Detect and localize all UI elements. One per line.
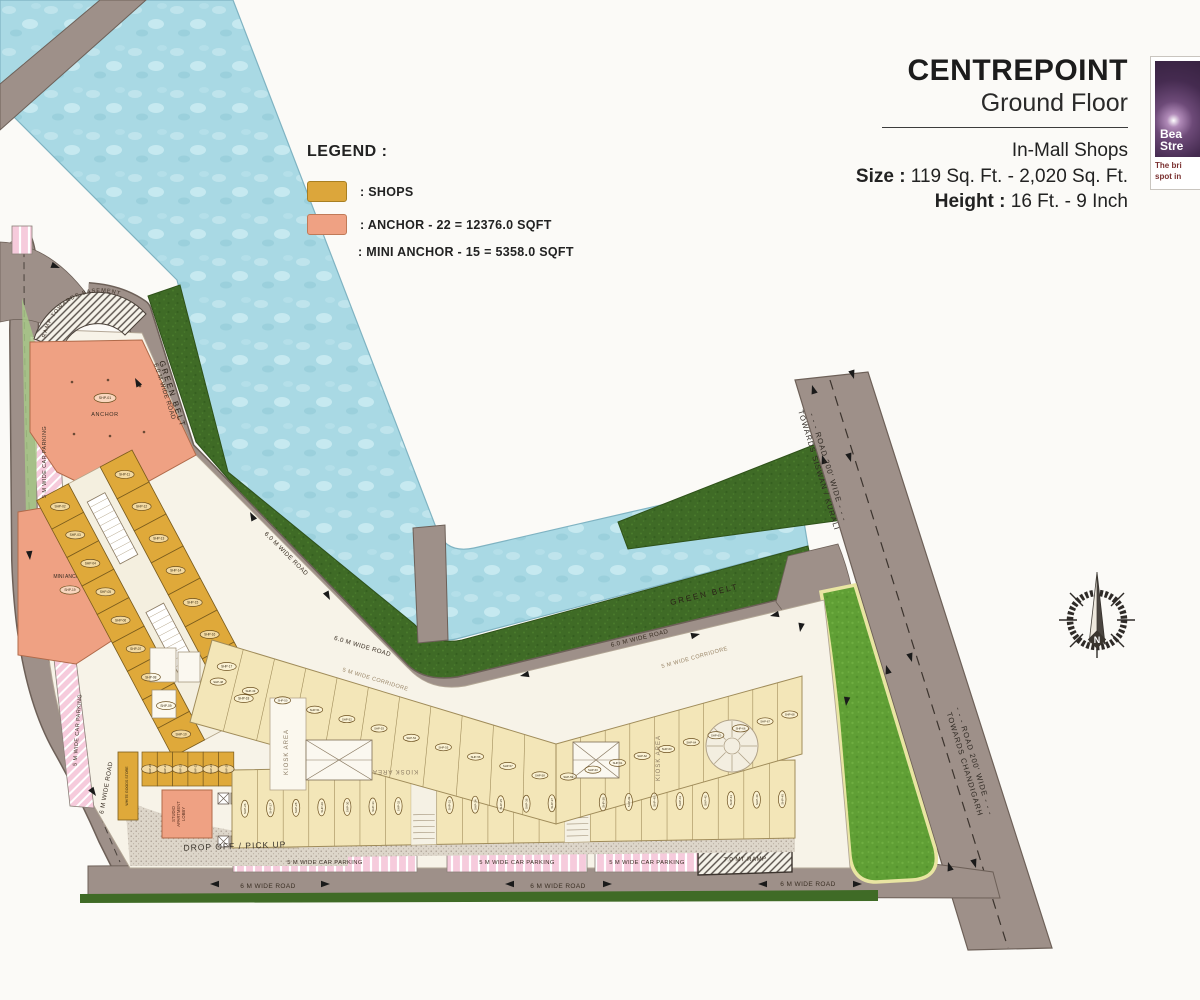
label-parking_5: 5 M WIDE CAR PARKING — [42, 426, 48, 498]
size-value: 119 Sq. Ft. - 2,020 Sq. Ft. — [911, 166, 1128, 187]
svg-text:SHP-64: SHP-64 — [686, 740, 696, 744]
svg-text:SHP-30: SHP-30 — [345, 801, 349, 812]
shop-oval: SHP-09 — [156, 702, 175, 710]
shop-oval: SHP-26 — [241, 800, 249, 817]
shop-oval: SHP-38 — [599, 794, 607, 811]
size-label: Size : — [856, 166, 906, 187]
height-value: 16 Ft. - 9 Inch — [1011, 191, 1128, 212]
svg-text:SHP-19: SHP-19 — [64, 588, 75, 592]
anchor-label: ANCHOR — [91, 412, 118, 418]
shop-oval: SHP-13 — [149, 534, 168, 542]
svg-text:SHP-65: SHP-65 — [711, 733, 721, 737]
shop-oval: SHP-35 — [497, 796, 505, 813]
shop-oval: SHP-43 — [727, 792, 735, 809]
shop-oval: SHP-65 — [708, 732, 724, 739]
shop-oval: SHP-48 — [210, 678, 226, 685]
shop-oval: SHP-32 — [395, 798, 403, 815]
shop-oval: SHP-37 — [548, 795, 556, 812]
shop-oval: SHP-11 — [115, 470, 134, 478]
shop-oval: SHP-40 — [650, 793, 658, 810]
brand-logo-text: Bea Stre — [1160, 128, 1183, 153]
shop-oval: SHP-02 — [51, 502, 70, 510]
svg-text:SHP-10: SHP-10 — [176, 732, 187, 736]
shop-oval: SHP-27 — [267, 800, 275, 817]
shop-oval: SHP-33 — [446, 797, 454, 814]
shop-oval: SHP-14 — [166, 566, 185, 574]
svg-text:SHP-44: SHP-44 — [755, 794, 759, 805]
legend-item-label: : SHOPS — [360, 185, 414, 199]
height-label: Height : — [935, 191, 1006, 212]
svg-text:SHP-58: SHP-58 — [535, 774, 545, 778]
svg-text:SHP-02: SHP-02 — [55, 505, 66, 509]
logo-caption2: spot in — [1155, 172, 1200, 183]
svg-text:SHP-26: SHP-26 — [243, 803, 247, 814]
legend-item-mini-anchor: : MINI ANCHOR - 15 = 5358.0 SQFT — [358, 245, 574, 259]
page-subtitle: Ground Floor — [708, 89, 1128, 118]
shop-oval: SHP-39 — [625, 793, 633, 810]
svg-text:SHP-17: SHP-17 — [221, 665, 232, 669]
shops-swatch — [307, 181, 347, 202]
anchor-swatch — [307, 214, 347, 235]
svg-text:SHP-51: SHP-51 — [310, 708, 320, 712]
svg-text:SHP-43: SHP-43 — [729, 795, 733, 806]
svg-text:SHP-67: SHP-67 — [760, 720, 770, 724]
svg-text:SHP-54: SHP-54 — [406, 736, 416, 740]
shop-oval: SHP-30 — [343, 798, 351, 815]
legend-item-label: : ANCHOR - 22 = 12376.0 SQFT — [360, 218, 552, 232]
svg-text:SHP-52: SHP-52 — [342, 717, 352, 721]
legend: LEGEND : : SHOPS : ANCHOR - 22 = 12376.0… — [307, 143, 574, 271]
svg-text:SHP-33: SHP-33 — [448, 800, 452, 811]
svg-text:SHP-12: SHP-12 — [136, 505, 147, 509]
shop-oval: SHP-19 — [60, 586, 80, 594]
shop-oval: SHP-68 — [782, 711, 798, 718]
svg-text:SHP-29: SHP-29 — [320, 802, 324, 813]
svg-text:SHP-28: SHP-28 — [294, 802, 298, 813]
svg-text:SHP-27: SHP-27 — [269, 803, 273, 814]
svg-text:SHP-60: SHP-60 — [588, 768, 598, 772]
title-block: CENTREPOINT Ground Floor In-Mall Shops S… — [708, 54, 1128, 216]
svg-text:SHP-49: SHP-49 — [245, 689, 255, 693]
shop-oval: SHP-06 — [111, 616, 130, 624]
shop-oval: SHP-60 — [585, 766, 601, 773]
shop-oval: SHP-67 — [757, 718, 773, 725]
label-kiosk: KIOSK AREA — [284, 729, 290, 775]
shop-oval: SHP-62 — [634, 752, 650, 759]
shop-oval: SHP-17 — [217, 662, 236, 670]
shop-oval: SHP-41 — [676, 793, 684, 810]
brand-logo-caption: The bri spot in — [1155, 161, 1200, 183]
svg-text:SHP-20: SHP-20 — [148, 764, 152, 774]
svg-text:SHP-37: SHP-37 — [550, 798, 554, 809]
svg-text:SHP-41: SHP-41 — [678, 795, 682, 806]
shop-oval: SHP-55 — [435, 744, 451, 751]
shop-oval: SHP-15 — [183, 598, 202, 606]
shop-oval: SHP-04 — [81, 559, 100, 567]
svg-text:SHP-50: SHP-50 — [278, 699, 288, 703]
label-kiosk: KIOSK AREA — [372, 768, 418, 774]
svg-text:SHP-06: SHP-06 — [115, 618, 126, 622]
svg-text:SHP-05: SHP-05 — [100, 590, 111, 594]
svg-text:SHP-24: SHP-24 — [209, 764, 213, 774]
size-line: Size : 119 Sq. Ft. - 2,020 Sq. Ft. — [708, 166, 1128, 188]
compass-north-letter: N — [1094, 635, 1101, 645]
label-ramp7: 7.0 MT RAMP — [723, 856, 766, 864]
svg-text:SHP-34: SHP-34 — [473, 799, 477, 810]
shop-oval: SHP-64 — [683, 739, 699, 746]
label-road_6: 6 M WIDE ROAD — [240, 883, 295, 890]
svg-text:SHP-13: SHP-13 — [153, 537, 164, 541]
svg-text:SHP-36: SHP-36 — [524, 798, 528, 809]
shop-oval: SHP-50 — [275, 697, 291, 704]
shop-oval: SHP-58 — [532, 772, 548, 779]
shop-oval: SHP-66 — [733, 725, 749, 732]
height-line: Height : 16 Ft. - 9 Inch — [708, 191, 1128, 213]
svg-text:SHP-31: SHP-31 — [371, 801, 375, 812]
svg-text:SHP-68: SHP-68 — [785, 713, 795, 717]
legend-item-shops: : SHOPS — [307, 181, 574, 202]
compass-rose: N — [1059, 572, 1135, 658]
svg-text:SHP-11: SHP-11 — [119, 473, 130, 477]
legend-title: LEGEND : — [307, 143, 574, 161]
shop-oval: SHP-56 — [468, 753, 484, 760]
label-parking_5: 5 M WIDE CAR PARKING — [287, 860, 363, 866]
label-parking_5: 5 M WIDE CAR PARKING — [609, 860, 685, 866]
shop-oval: SHP-18 — [234, 695, 253, 703]
svg-text:SHP-38: SHP-38 — [601, 797, 605, 808]
shop-oval: SHP-29 — [318, 799, 326, 816]
svg-text:SHP-16: SHP-16 — [204, 633, 215, 637]
svg-text:SHP-57: SHP-57 — [503, 764, 513, 768]
shop-oval: SHP-44 — [753, 791, 761, 808]
shop-oval: SHP-28 — [292, 799, 300, 816]
utility-room — [178, 652, 200, 682]
svg-text:SHP-03: SHP-03 — [70, 533, 81, 537]
svg-text:SHP-62: SHP-62 — [637, 754, 647, 758]
shop-oval: SHP-34 — [471, 796, 479, 813]
title-divider — [882, 127, 1128, 128]
shop-oval: SHP-53 — [371, 725, 387, 732]
svg-text:SHP-59: SHP-59 — [563, 775, 573, 779]
svg-text:SHP-45: SHP-45 — [780, 794, 784, 805]
shop-oval: SHP-42 — [702, 792, 710, 809]
shop-oval: SHP-08 — [141, 673, 160, 681]
shop-oval: SHP-54 — [403, 734, 419, 741]
shop-oval: SHP-16 — [200, 630, 219, 638]
shop-oval: SHP-03 — [66, 531, 85, 539]
svg-text:SHP-14: SHP-14 — [170, 569, 181, 573]
svg-text:SHP-08: SHP-08 — [145, 675, 156, 679]
brand-logo-image: Bea Stre — [1155, 61, 1200, 157]
svg-text:SHP-01: SHP-01 — [99, 396, 112, 400]
svg-text:SHP-39: SHP-39 — [627, 796, 631, 807]
svg-text:SHP-63: SHP-63 — [662, 747, 672, 751]
shop-oval: SHP-12 — [132, 502, 151, 510]
studio-apartment-lobby — [162, 790, 212, 838]
label-road_6: 6 M WIDE ROAD — [530, 883, 585, 890]
page: { "header": { "title": "CENTREPOINT", "s… — [0, 0, 1200, 1000]
svg-text:SHP-61: SHP-61 — [613, 761, 623, 765]
shop-oval: SHP-52 — [339, 715, 355, 722]
label-road_6: 6 M WIDE ROAD — [780, 881, 835, 888]
inmall-shops-label: In-Mall Shops — [708, 140, 1128, 162]
shop-oval: SHP-07 — [126, 645, 145, 653]
legend-item-label: : MINI ANCHOR - 15 = 5358.0 SQFT — [358, 245, 574, 259]
label-kiosk: KIOSK AREA — [656, 735, 662, 781]
svg-text:SHP-22: SHP-22 — [178, 764, 182, 774]
svg-text:SHP-25: SHP-25 — [224, 764, 228, 774]
svg-text:SHP-09: SHP-09 — [160, 704, 171, 708]
logo-caption1: The bri — [1155, 161, 1200, 172]
brand-logo: Bea Stre The bri spot in — [1150, 56, 1200, 190]
shop-oval: SHP-51 — [307, 706, 323, 713]
shop-oval: SHP-36 — [522, 795, 530, 812]
svg-text:SHP-21: SHP-21 — [163, 764, 167, 774]
shop-oval: SHP-61 — [610, 759, 626, 766]
shop-oval: SHP-49 — [242, 687, 258, 694]
svg-text:SHP-04: SHP-04 — [85, 562, 96, 566]
shop-oval: SHP-01 — [94, 393, 116, 402]
svg-text:SHP-55: SHP-55 — [438, 745, 448, 749]
svg-text:SHP-35: SHP-35 — [499, 799, 503, 810]
shop-oval: SHP-05 — [96, 588, 115, 596]
legend-item-anchor: : ANCHOR - 22 = 12376.0 SQFT — [307, 214, 574, 235]
page-title: CENTREPOINT — [708, 54, 1128, 87]
shop-oval: SHP-45 — [778, 791, 786, 808]
shop-oval: SHP-57 — [500, 762, 516, 769]
svg-text:SHP-56: SHP-56 — [471, 755, 481, 759]
svg-text:SHP-18: SHP-18 — [238, 697, 249, 701]
svg-text:SHP-15: SHP-15 — [187, 601, 198, 605]
svg-text:SHP-40: SHP-40 — [652, 796, 656, 807]
label-parking_5: 5 M WIDE CAR PARKING — [479, 860, 555, 866]
svg-text:SHP-66: SHP-66 — [736, 727, 746, 731]
shop-oval: SHP-59 — [560, 773, 576, 780]
svg-text:SHP-23: SHP-23 — [194, 764, 198, 774]
logo-line2: Stre — [1160, 140, 1183, 153]
shop-oval: SHP-10 — [172, 730, 191, 738]
svg-text:SHP-07: SHP-07 — [130, 647, 141, 651]
shop-oval: SHP-31 — [369, 798, 377, 815]
white-goods-label: WHITE GOODS STORE — [125, 766, 129, 806]
svg-text:SHP-32: SHP-32 — [397, 800, 401, 811]
svg-text:SHP-48: SHP-48 — [213, 680, 223, 684]
svg-text:SHP-53: SHP-53 — [374, 727, 384, 731]
svg-text:SHP-42: SHP-42 — [704, 795, 708, 806]
